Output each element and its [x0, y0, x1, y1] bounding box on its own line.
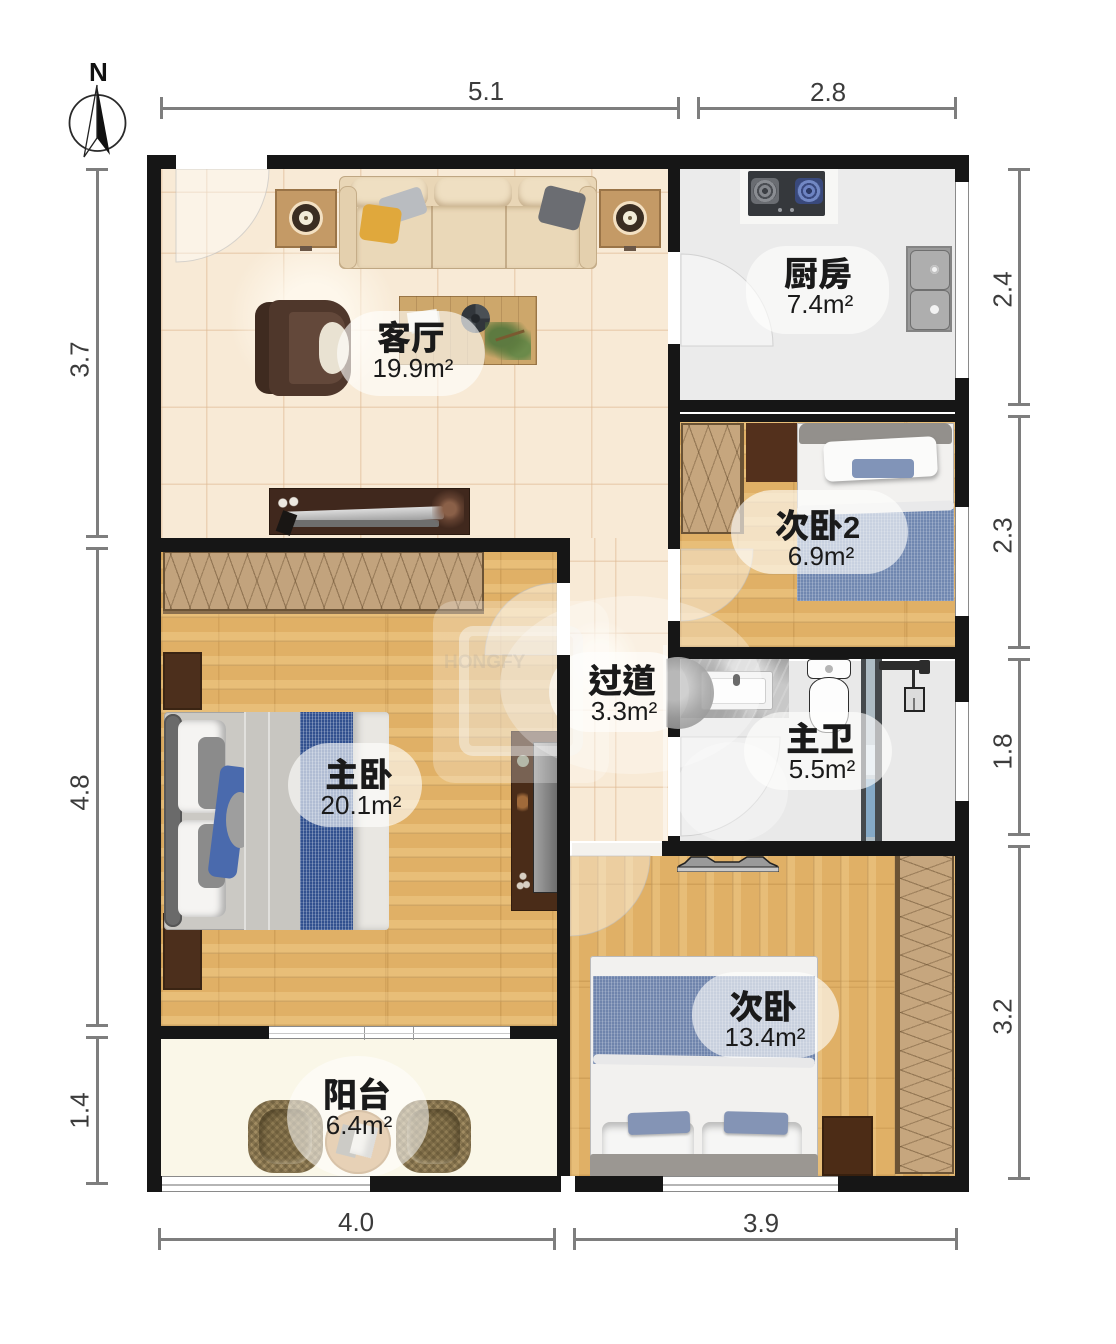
svg-text:N: N — [89, 57, 108, 87]
svg-text:2: 2 — [843, 510, 860, 545]
